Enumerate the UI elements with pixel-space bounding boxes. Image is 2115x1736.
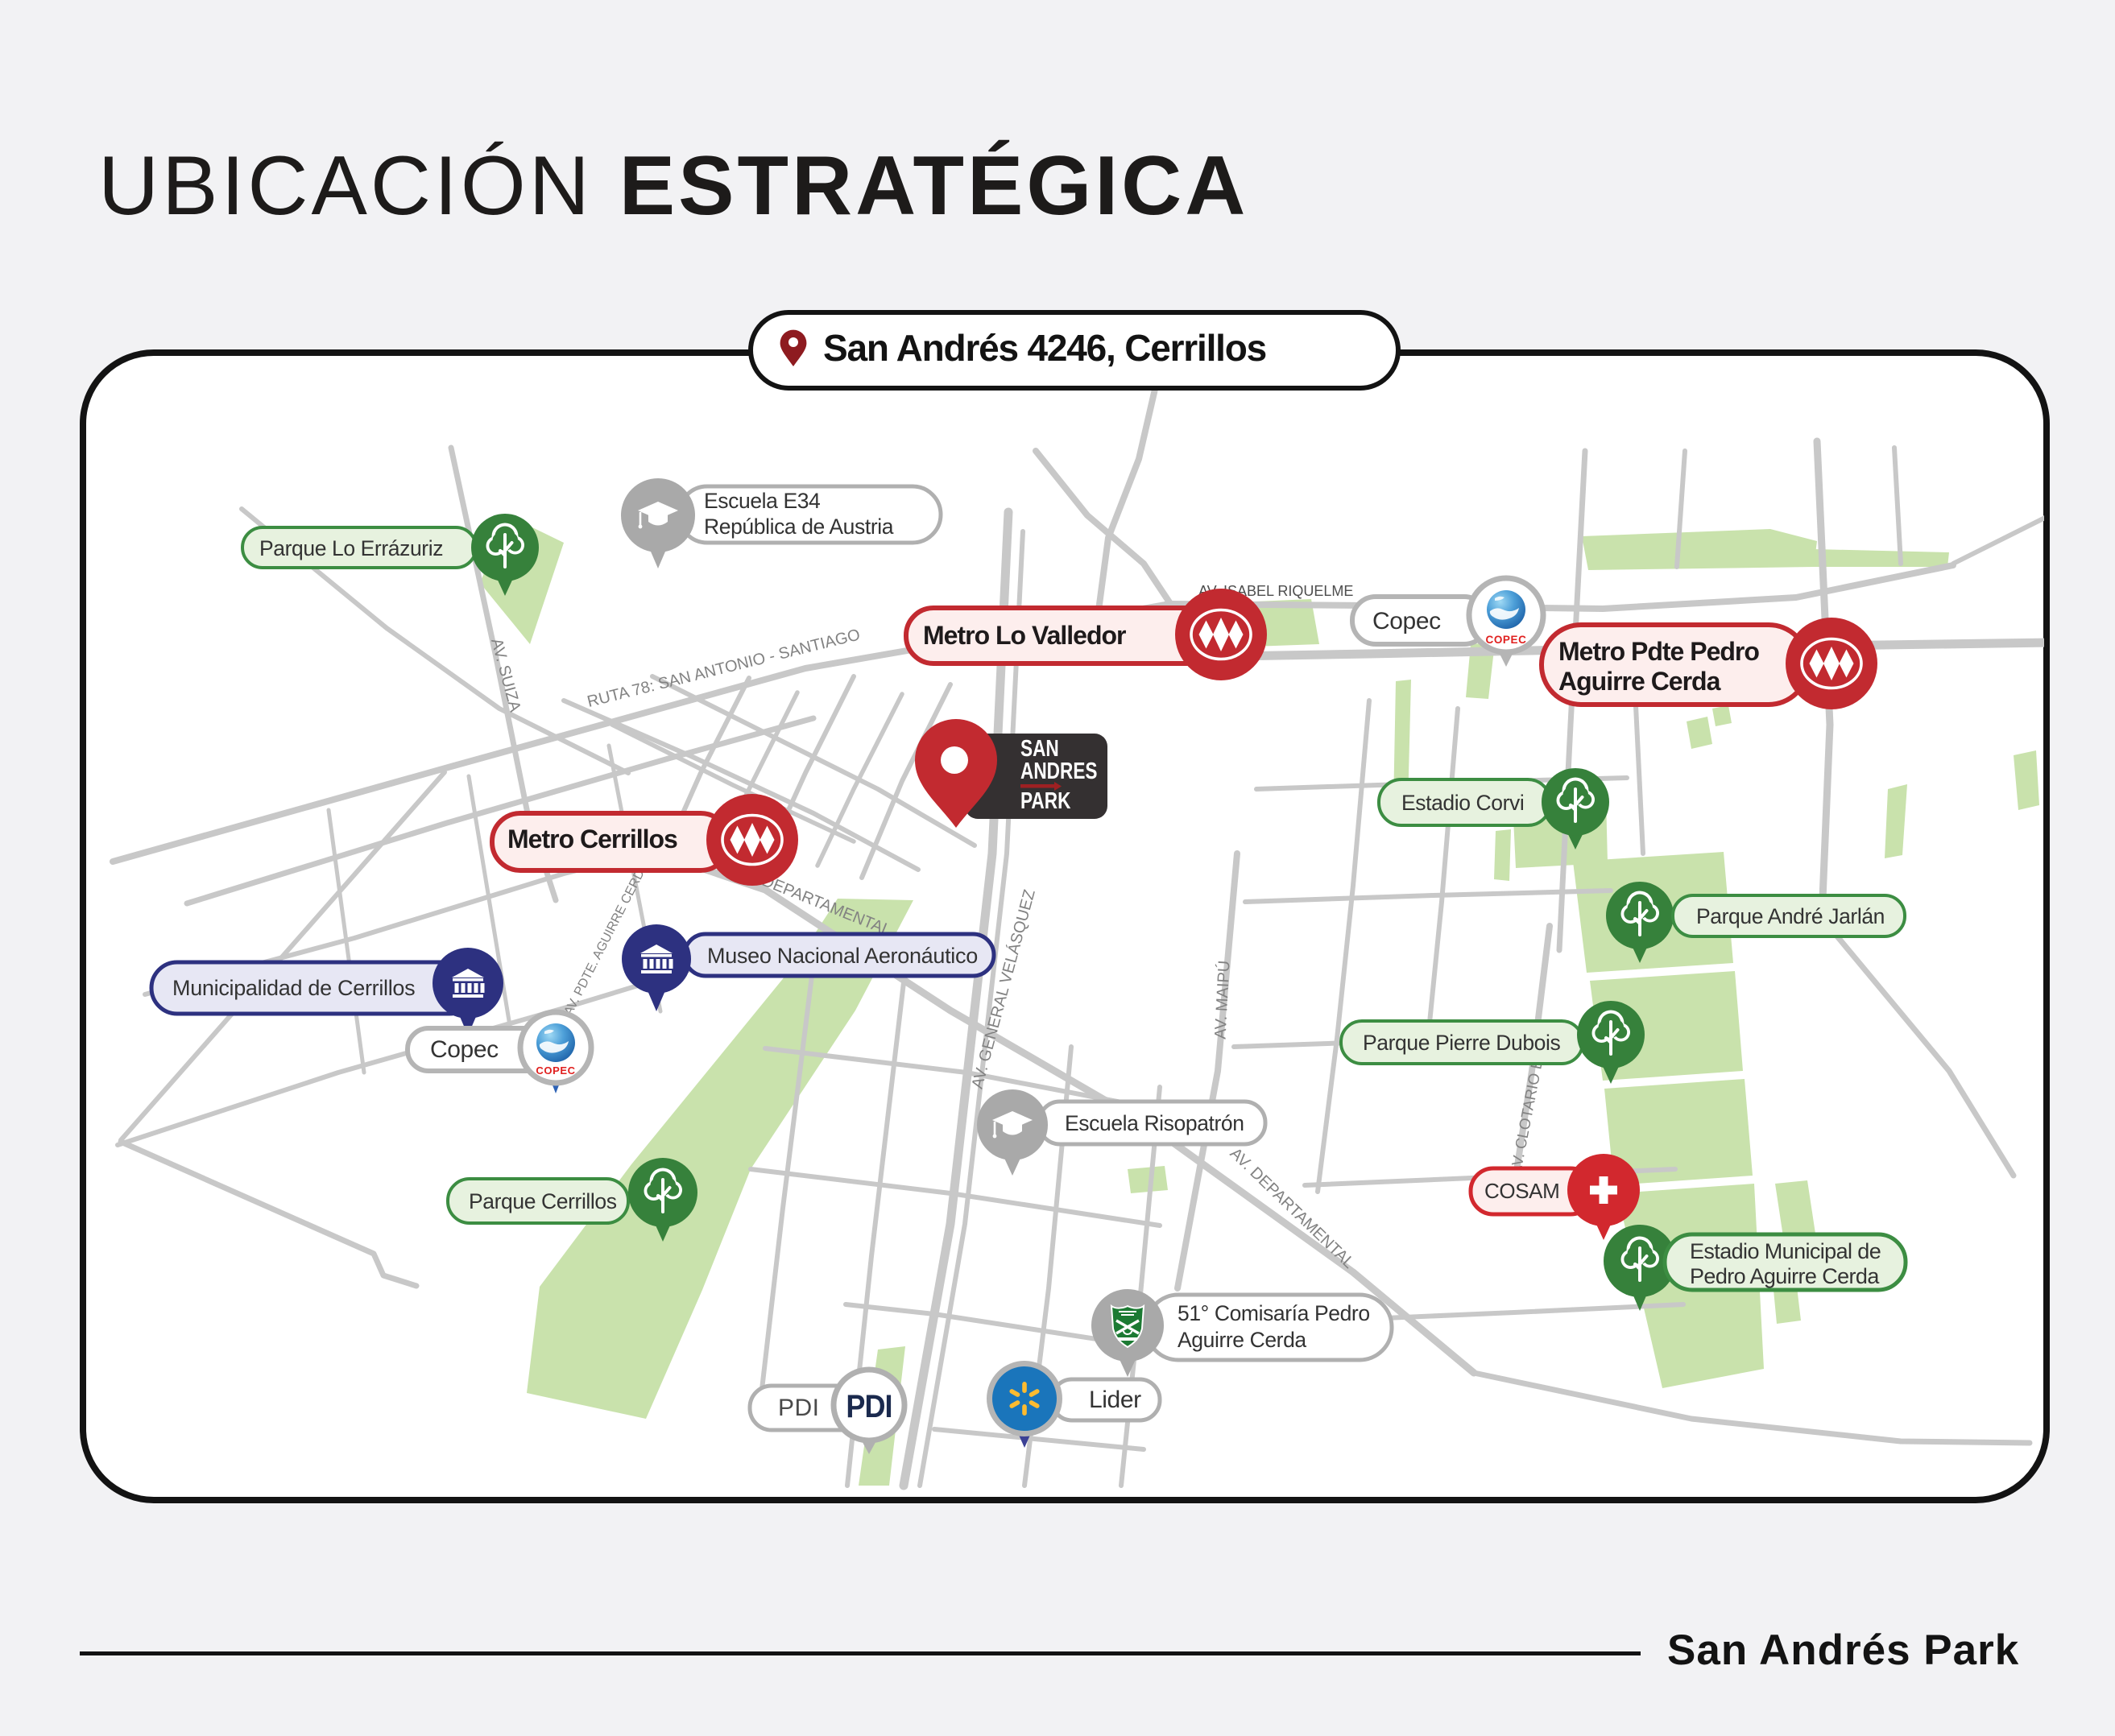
- svg-text:Metro Cerrillos: Metro Cerrillos: [507, 825, 677, 854]
- svg-text:Escuela E34: Escuela E34: [704, 489, 820, 513]
- svg-text:51° Comisaría Pedro: 51° Comisaría Pedro: [1178, 1301, 1370, 1325]
- svg-text:Museo Nacional Aeronáutico: Museo Nacional Aeronáutico: [707, 944, 978, 968]
- svg-text:Parque Pierre Dubois: Parque Pierre Dubois: [1363, 1031, 1561, 1055]
- svg-text:Estadio Corvi: Estadio Corvi: [1401, 791, 1524, 815]
- svg-text:ANDRES: ANDRES: [1020, 757, 1097, 783]
- svg-text:UBICACIÓN ESTRATÉGICA: UBICACIÓN ESTRATÉGICA: [98, 139, 1248, 233]
- svg-text:PARK: PARK: [1020, 787, 1071, 813]
- svg-text:COPEC: COPEC: [1485, 634, 1526, 646]
- svg-text:Metro Pdte Pedro: Metro Pdte Pedro: [1558, 637, 1759, 666]
- svg-text:Copec: Copec: [430, 1036, 499, 1063]
- svg-text:Aguirre Cerda: Aguirre Cerda: [1178, 1328, 1306, 1352]
- svg-text:PDI: PDI: [778, 1395, 820, 1421]
- svg-text:San Andrés 4246, Cerrillos: San Andrés 4246, Cerrillos: [823, 327, 1266, 369]
- svg-text:Escuela Risopatrón: Escuela Risopatrón: [1065, 1111, 1244, 1135]
- svg-text:PDI: PDI: [846, 1389, 892, 1424]
- svg-text:COSAM: COSAM: [1484, 1179, 1559, 1203]
- svg-text:Copec: Copec: [1372, 608, 1441, 634]
- svg-text:Estadio Municipal de: Estadio Municipal de: [1690, 1239, 1881, 1263]
- svg-text:Parque Lo Errázuriz: Parque Lo Errázuriz: [259, 536, 443, 560]
- svg-text:Parque André Jarlán: Parque André Jarlán: [1696, 904, 1885, 928]
- svg-text:Municipalidad de Cerrillos: Municipalidad de Cerrillos: [172, 976, 415, 1000]
- svg-text:Metro Lo Valledor: Metro Lo Valledor: [923, 621, 1126, 650]
- svg-text:República de Austria: República de Austria: [704, 515, 894, 539]
- svg-text:Lider: Lider: [1089, 1387, 1141, 1413]
- svg-text:Aguirre Cerda: Aguirre Cerda: [1558, 667, 1721, 696]
- svg-text:San Andrés Park: San Andrés Park: [1667, 1626, 2019, 1674]
- svg-text:COPEC: COPEC: [536, 1064, 575, 1077]
- svg-text:Pedro Aguirre Cerda: Pedro Aguirre Cerda: [1690, 1264, 1880, 1288]
- svg-text:Parque Cerrillos: Parque Cerrillos: [469, 1189, 617, 1213]
